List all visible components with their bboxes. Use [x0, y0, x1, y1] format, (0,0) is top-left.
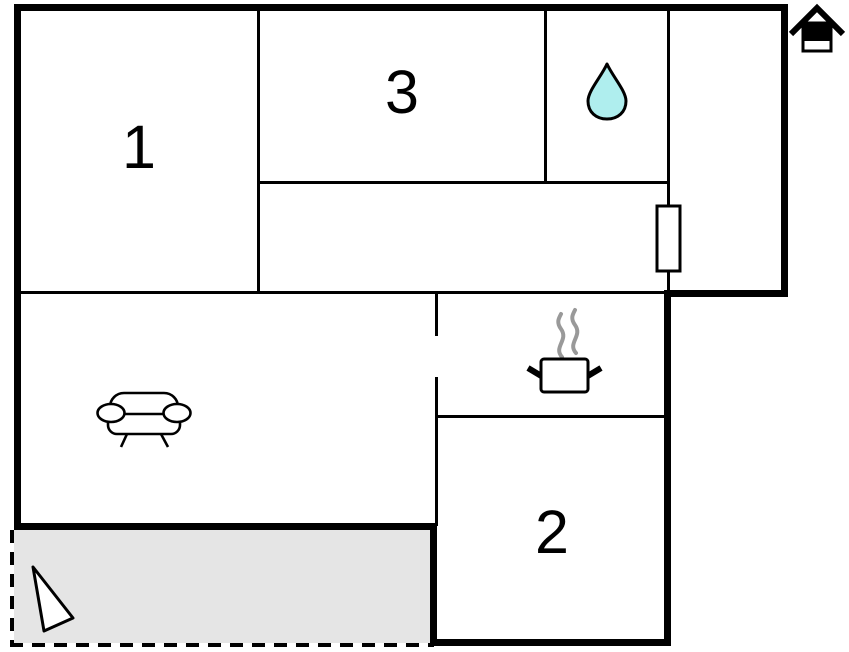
room-3-area: [260, 11, 544, 181]
wall-entrance-bottom: [664, 290, 788, 297]
kitchen-area: [438, 294, 664, 415]
corridor-area: [260, 184, 667, 291]
wall-hall-upper-segment: [435, 291, 438, 336]
wall-room1-right: [257, 4, 260, 294]
wall-terrace-right: [430, 523, 437, 646]
wall-outer-right-upper: [781, 4, 788, 297]
room-2-area: [438, 418, 664, 639]
wall-outer-bottom: [430, 639, 671, 646]
floor-plan-drawing: 1 3 2: [0, 0, 849, 652]
wall-outer-right-main: [664, 290, 671, 646]
terrace-fill: [14, 530, 433, 643]
wall-kitchen-bottom: [435, 415, 670, 418]
wall-room3-bottom: [257, 181, 670, 184]
bathroom-area: [547, 11, 667, 181]
living-room-area: [21, 294, 435, 523]
house-icon: [791, 8, 843, 51]
floor-plan: 1 3 2: [0, 0, 849, 652]
room-1-area: [21, 11, 257, 291]
wall-room3-bathroom-divider: [544, 4, 547, 184]
entrance-area: [670, 11, 781, 290]
wall-living-bottom: [14, 523, 437, 530]
wall-hall-lower-segment: [435, 377, 438, 526]
wall-outer-top: [14, 4, 788, 11]
house-body-upper: [803, 23, 831, 41]
wall-corridor-bottom: [14, 291, 670, 294]
wall-outer-left: [14, 4, 21, 530]
terrace-area: [10, 530, 434, 647]
